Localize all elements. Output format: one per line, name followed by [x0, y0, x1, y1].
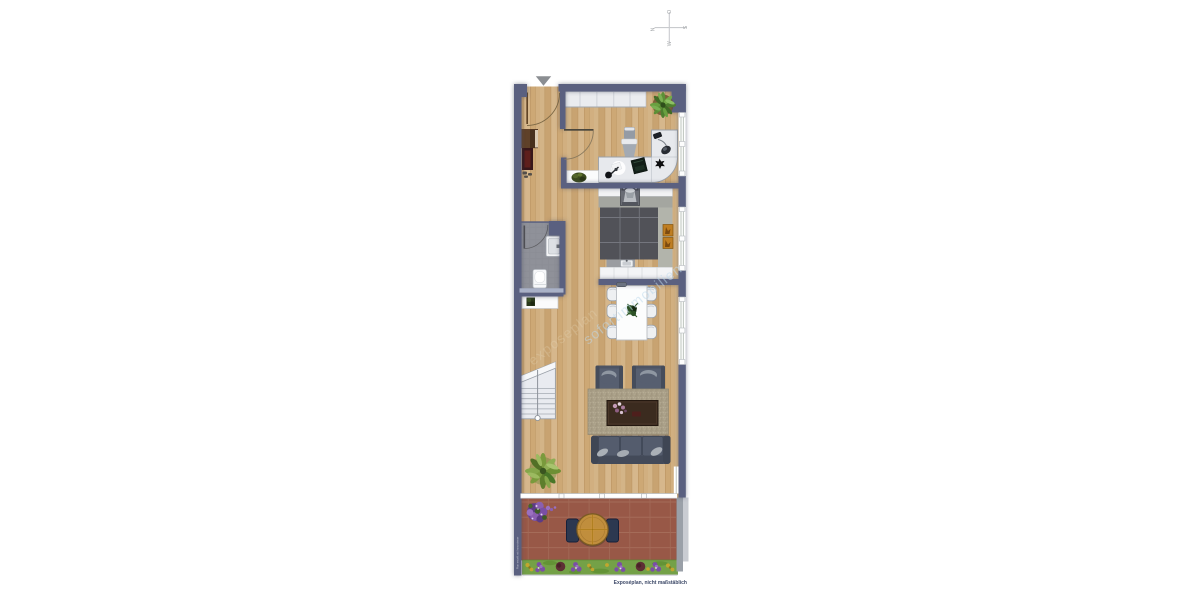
svg-text:Exposéplan, nicht maßstäblich: Exposéplan, nicht maßstäblich	[614, 580, 687, 586]
svg-text:Plan erstellt mit Immoviewer: Plan erstellt mit Immoviewer	[516, 537, 520, 570]
svg-text:N: N	[651, 27, 657, 31]
svg-text:O: O	[667, 10, 673, 14]
svg-text:S: S	[683, 25, 689, 29]
svg-text:W: W	[667, 41, 673, 46]
